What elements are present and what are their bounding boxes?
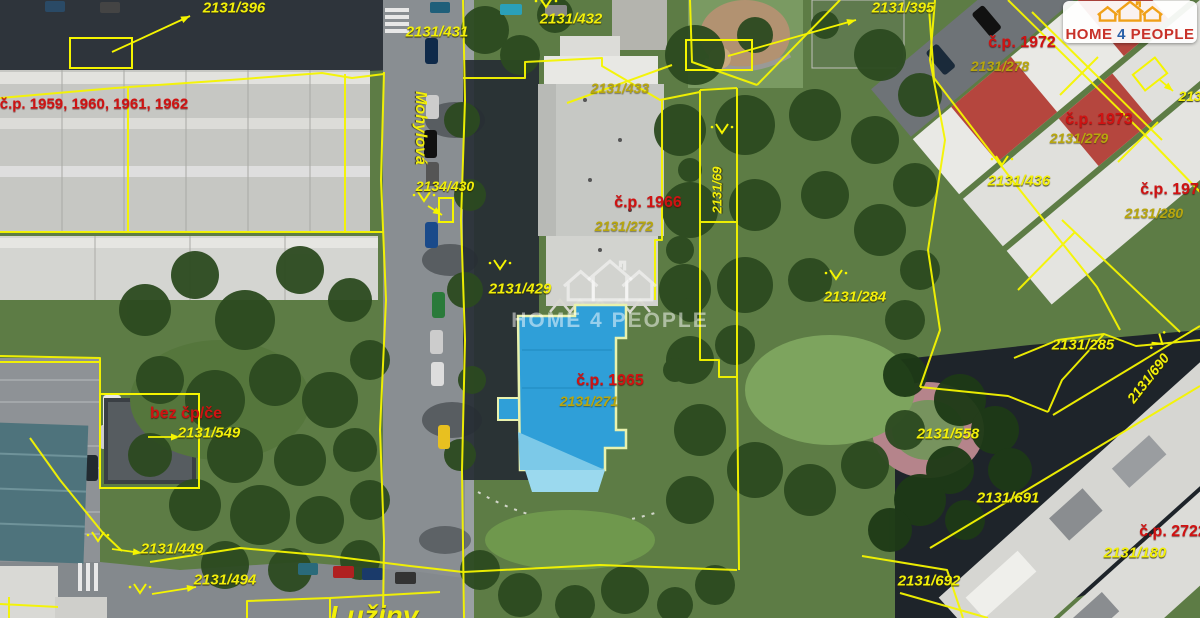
logo-wordmark: HOME 4 PEOPLE [1063, 26, 1197, 43]
aerial-imagery [0, 0, 1200, 618]
home4people-logo-icon [1094, 1, 1166, 22]
building-teal-roof [0, 422, 88, 563]
map-canvas[interactable]: 2131/3962131/3952131/4312131/4322131/433… [0, 0, 1200, 618]
home4people-logo: HOME 4 PEOPLE [1063, 1, 1197, 43]
building-cp1966 [538, 36, 664, 306]
road-mohylova [383, 0, 465, 618]
